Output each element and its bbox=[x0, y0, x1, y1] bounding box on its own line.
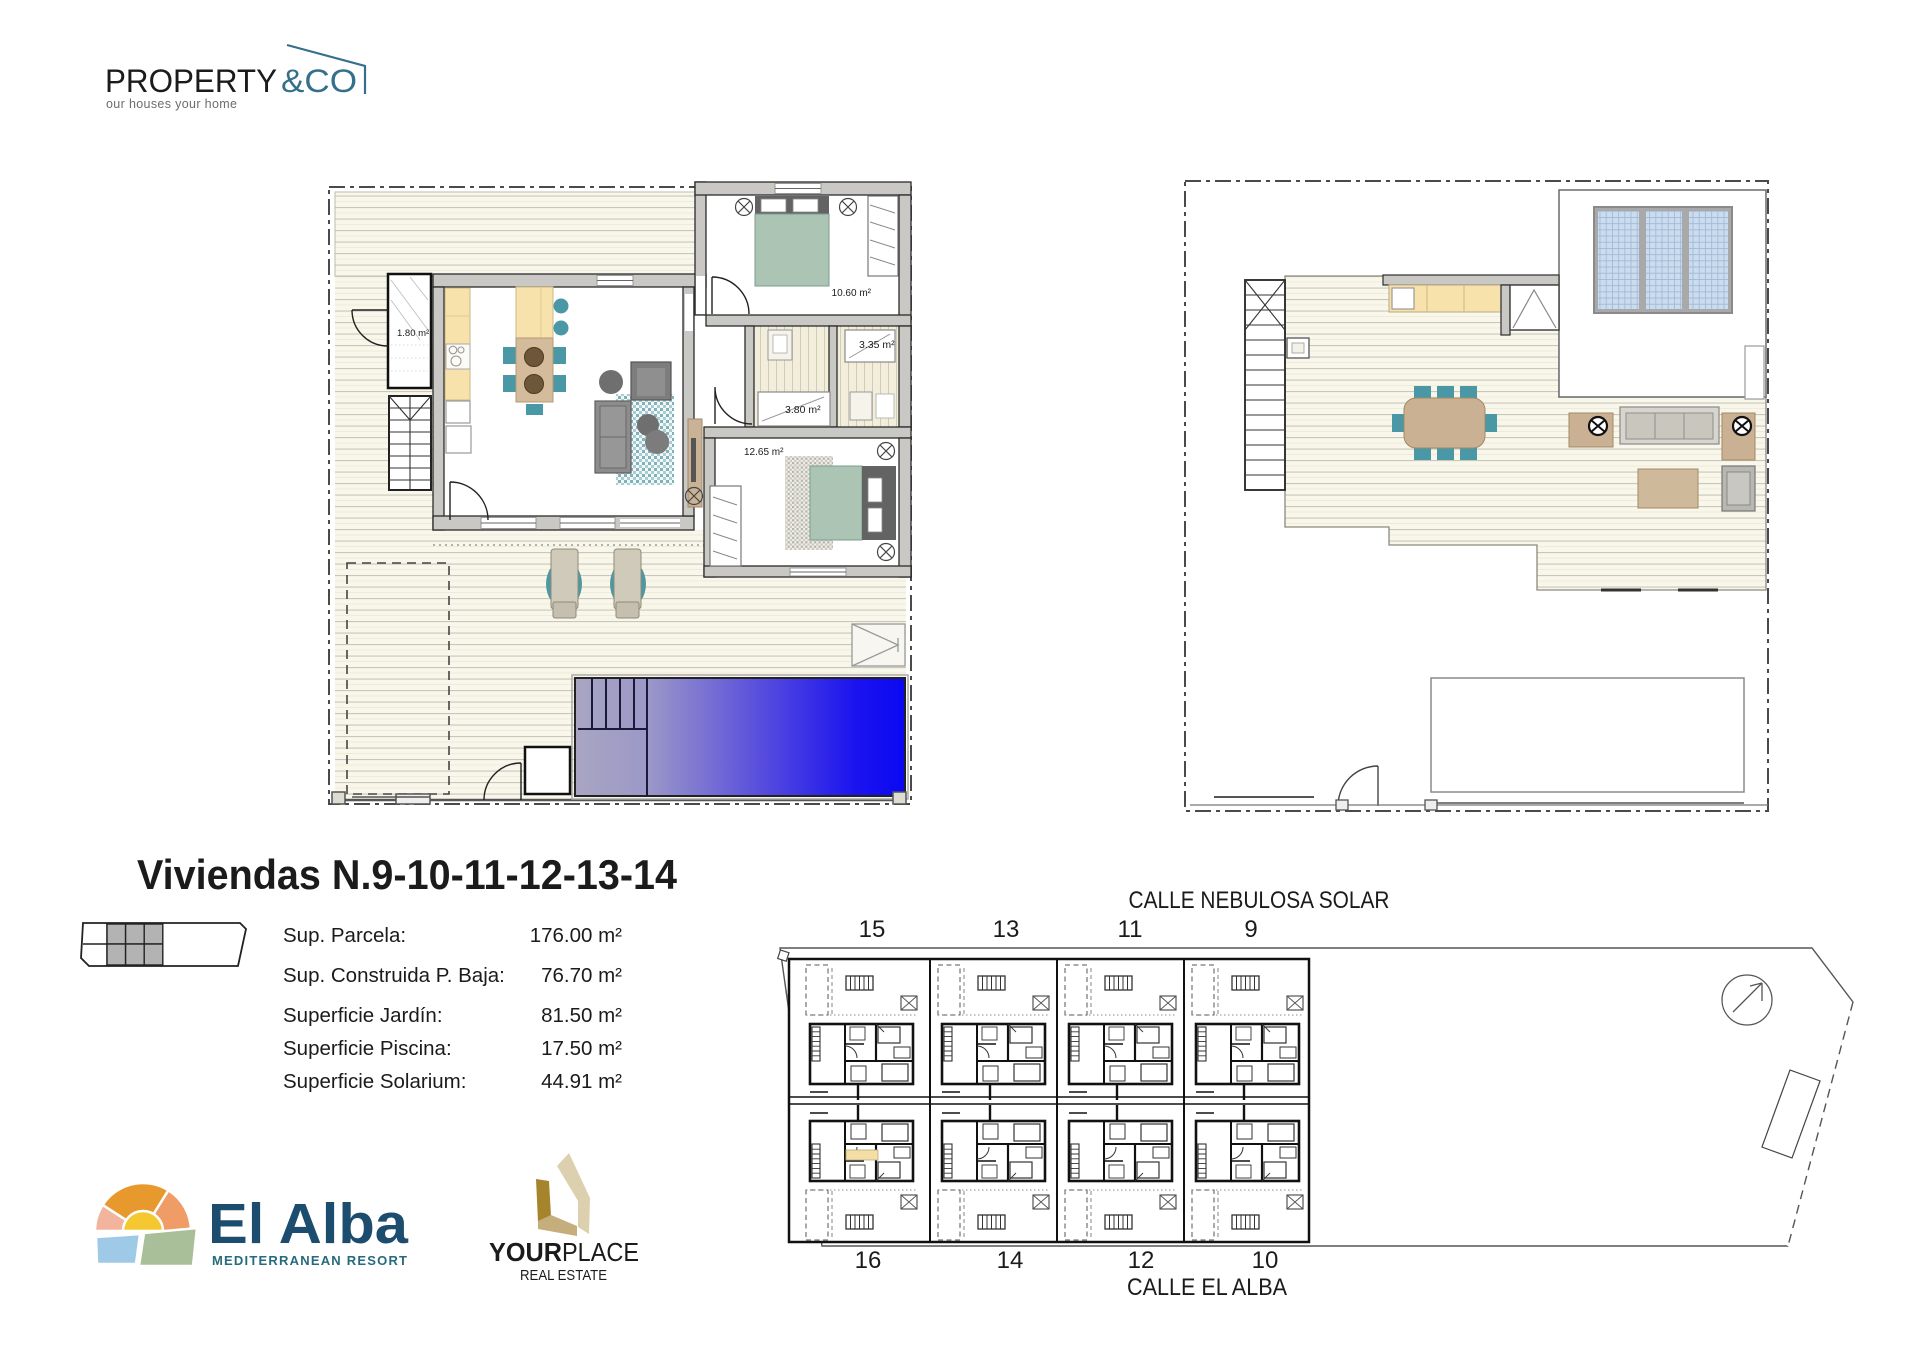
svg-text:PROPERTY: PROPERTY bbox=[105, 63, 277, 99]
svg-text:&CO: &CO bbox=[281, 63, 357, 99]
svg-text:76.70 m²: 76.70 m² bbox=[541, 964, 622, 987]
svg-text:11: 11 bbox=[1118, 916, 1143, 943]
svg-text:1.80 m²: 1.80 m² bbox=[397, 328, 429, 339]
svg-text:YOUR: YOUR bbox=[489, 1239, 562, 1267]
svg-text:MEDITERRANEAN RESORT: MEDITERRANEAN RESORT bbox=[212, 1253, 407, 1268]
svg-text:Sup. Parcela:: Sup. Parcela: bbox=[283, 924, 406, 947]
svg-text:12.65 m²: 12.65 m² bbox=[744, 447, 784, 458]
svg-text:Viviendas N.9-10-11-12-13-14: Viviendas N.9-10-11-12-13-14 bbox=[137, 851, 678, 898]
svg-text:Superficie Jardín:: Superficie Jardín: bbox=[283, 1004, 443, 1027]
svg-text:10.60 m²: 10.60 m² bbox=[832, 288, 872, 299]
svg-text:44.91 m²: 44.91 m² bbox=[541, 1070, 622, 1093]
svg-text:15: 15 bbox=[859, 916, 886, 943]
svg-text:14: 14 bbox=[997, 1247, 1024, 1274]
svg-text:3.35 m²: 3.35 m² bbox=[859, 339, 895, 351]
svg-text:176.00 m²: 176.00 m² bbox=[530, 924, 622, 947]
svg-text:PLACE: PLACE bbox=[562, 1239, 639, 1267]
svg-text:CALLE EL ALBA: CALLE EL ALBA bbox=[1127, 1274, 1287, 1301]
svg-text:Superficie Piscina:: Superficie Piscina: bbox=[283, 1037, 452, 1060]
svg-text:9: 9 bbox=[1244, 916, 1257, 943]
svg-text:CALLE NEBULOSA SOLAR: CALLE NEBULOSA SOLAR bbox=[1129, 887, 1390, 914]
svg-text:Superficie Solarium:: Superficie Solarium: bbox=[283, 1070, 466, 1093]
svg-text:16: 16 bbox=[855, 1247, 882, 1274]
svg-text:81.50 m²: 81.50 m² bbox=[541, 1004, 622, 1027]
svg-text:our houses your home: our houses your home bbox=[106, 97, 237, 111]
svg-text:17.50 m²: 17.50 m² bbox=[541, 1037, 622, 1060]
svg-text:REAL ESTATE: REAL ESTATE bbox=[520, 1268, 607, 1284]
svg-text:El Alba: El Alba bbox=[208, 1192, 409, 1256]
svg-text:12: 12 bbox=[1128, 1247, 1155, 1274]
svg-text:10: 10 bbox=[1252, 1247, 1279, 1274]
svg-text:Sup. Construida P. Baja:: Sup. Construida P. Baja: bbox=[283, 964, 505, 987]
svg-text:3.80 m²: 3.80 m² bbox=[785, 404, 821, 416]
svg-text:13: 13 bbox=[993, 916, 1020, 943]
